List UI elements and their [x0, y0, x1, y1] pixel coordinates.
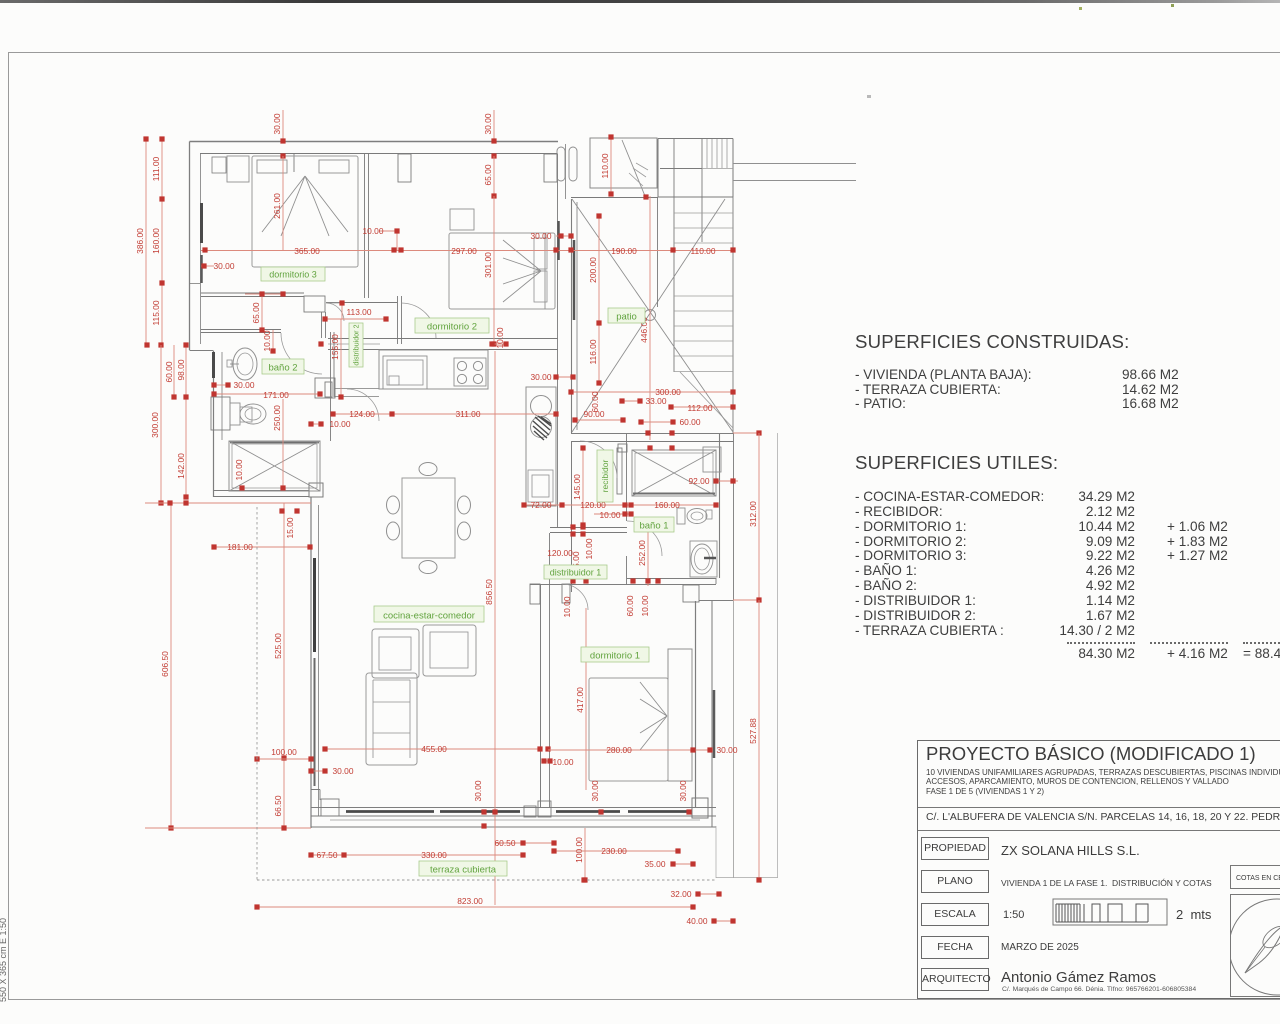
svg-text:dormitorio 3: dormitorio 3 [269, 270, 317, 280]
svg-text:100.00: 100.00 [271, 747, 297, 757]
svg-text:142.00: 142.00 [176, 453, 186, 479]
svg-text:baño 1: baño 1 [639, 521, 668, 532]
svg-text:280.00: 280.00 [606, 745, 632, 755]
svg-text:32.00: 32.00 [671, 889, 692, 899]
svg-text:10.00: 10.00 [363, 226, 384, 236]
svg-text:160.00: 160.00 [151, 228, 161, 254]
svg-text:30.00: 30.00 [272, 113, 282, 134]
svg-text:124.00: 124.00 [349, 409, 375, 419]
svg-text:patio: patio [616, 312, 637, 323]
svg-text:dormitorio 1: dormitorio 1 [590, 651, 640, 662]
svg-text:30.00: 30.00 [473, 780, 483, 801]
svg-text:386.00: 386.00 [135, 228, 145, 254]
svg-text:312.00: 312.00 [748, 501, 758, 527]
svg-text:181.00: 181.00 [227, 542, 253, 552]
svg-text:171.00: 171.00 [263, 390, 289, 400]
svg-text:111.00: 111.00 [151, 156, 161, 181]
svg-text:527.88: 527.88 [748, 718, 758, 744]
svg-text:10.00: 10.00 [562, 596, 572, 617]
svg-text:10.00: 10.00 [262, 330, 272, 351]
svg-text:417.00: 417.00 [575, 687, 585, 713]
svg-text:301.00: 301.00 [483, 252, 493, 278]
svg-text:160.00: 160.00 [654, 500, 680, 510]
svg-text:311.00: 311.00 [456, 409, 481, 419]
svg-text:365.00: 365.00 [294, 246, 320, 256]
svg-text:455.00: 455.00 [421, 744, 447, 754]
svg-text:65.00: 65.00 [483, 164, 493, 185]
svg-text:92.00: 92.00 [689, 476, 710, 486]
svg-text:115.00: 115.00 [151, 300, 161, 325]
svg-text:cocina-estar-comedor: cocina-estar-comedor [383, 611, 475, 622]
svg-text:856.50: 856.50 [484, 579, 494, 605]
svg-text:300.00: 300.00 [150, 412, 160, 438]
svg-text:30.00: 30.00 [590, 780, 600, 801]
svg-text:dormitorio 2: dormitorio 2 [427, 322, 477, 333]
svg-text:606.50: 606.50 [160, 651, 170, 677]
svg-text:120.00: 120.00 [547, 548, 573, 558]
svg-text:15.00: 15.00 [285, 517, 295, 538]
svg-text:60.00: 60.00 [625, 595, 635, 616]
svg-text:10.00: 10.00 [600, 510, 621, 520]
svg-text:525.00: 525.00 [273, 633, 283, 659]
svg-text:145.00: 145.00 [572, 474, 582, 500]
svg-text:terraza cubierta: terraza cubierta [430, 865, 497, 876]
svg-text:recibidor: recibidor [600, 460, 610, 493]
svg-text:261.00: 261.00 [272, 193, 282, 219]
svg-text:230.00: 230.00 [601, 846, 627, 856]
svg-text:33.00: 33.00 [646, 396, 667, 406]
svg-text:30.00: 30.00 [214, 261, 235, 271]
svg-text:72.00: 72.00 [531, 500, 552, 510]
svg-text:30.00: 30.00 [234, 380, 255, 390]
svg-text:116.00: 116.00 [588, 339, 598, 364]
svg-text:823.00: 823.00 [457, 896, 483, 906]
svg-text:10.00: 10.00 [495, 327, 505, 348]
svg-text:100.00: 100.00 [574, 837, 584, 863]
svg-text:30.00: 30.00 [531, 372, 552, 382]
svg-text:297.00: 297.00 [451, 246, 477, 256]
svg-text:distribuidor 2: distribuidor 2 [352, 324, 361, 365]
svg-text:155.00: 155.00 [330, 334, 340, 360]
svg-text:60.00: 60.00 [680, 417, 701, 427]
svg-text:10.00: 10.00 [584, 538, 594, 559]
svg-text:10.00: 10.00 [553, 757, 574, 767]
svg-text:distribuidor 1: distribuidor 1 [550, 568, 602, 578]
svg-text:65.00: 65.00 [251, 302, 261, 323]
svg-text:190.00: 190.00 [611, 246, 637, 256]
svg-text:10.00: 10.00 [234, 459, 244, 480]
svg-text:113.00: 113.00 [347, 307, 372, 317]
svg-text:112.00: 112.00 [688, 403, 713, 413]
svg-text:30.00: 30.00 [717, 745, 738, 755]
svg-text:60.00: 60.00 [164, 361, 174, 382]
svg-text:200.00: 200.00 [588, 257, 598, 283]
svg-text:10.00: 10.00 [640, 595, 650, 616]
svg-text:90.00: 90.00 [584, 409, 605, 419]
svg-text:60.50: 60.50 [495, 838, 516, 848]
svg-text:30.00: 30.00 [333, 766, 354, 776]
svg-text:30.00: 30.00 [483, 113, 493, 134]
svg-text:30.00: 30.00 [678, 780, 688, 801]
svg-text:40.00: 40.00 [687, 916, 708, 926]
svg-text:30.00: 30.00 [531, 231, 552, 241]
svg-text:35.00: 35.00 [645, 859, 666, 869]
svg-text:110.00: 110.00 [600, 153, 610, 178]
svg-text:98.00: 98.00 [176, 359, 186, 380]
svg-text:baño 2: baño 2 [268, 363, 297, 374]
svg-text:330.00: 330.00 [421, 850, 447, 860]
svg-text:66.50: 66.50 [273, 795, 283, 816]
svg-text:67.50: 67.50 [317, 850, 338, 860]
svg-text:10.00: 10.00 [330, 419, 351, 429]
svg-text:252.00: 252.00 [637, 540, 647, 566]
svg-text:250.00: 250.00 [272, 405, 282, 431]
svg-text:110.00: 110.00 [691, 246, 716, 256]
